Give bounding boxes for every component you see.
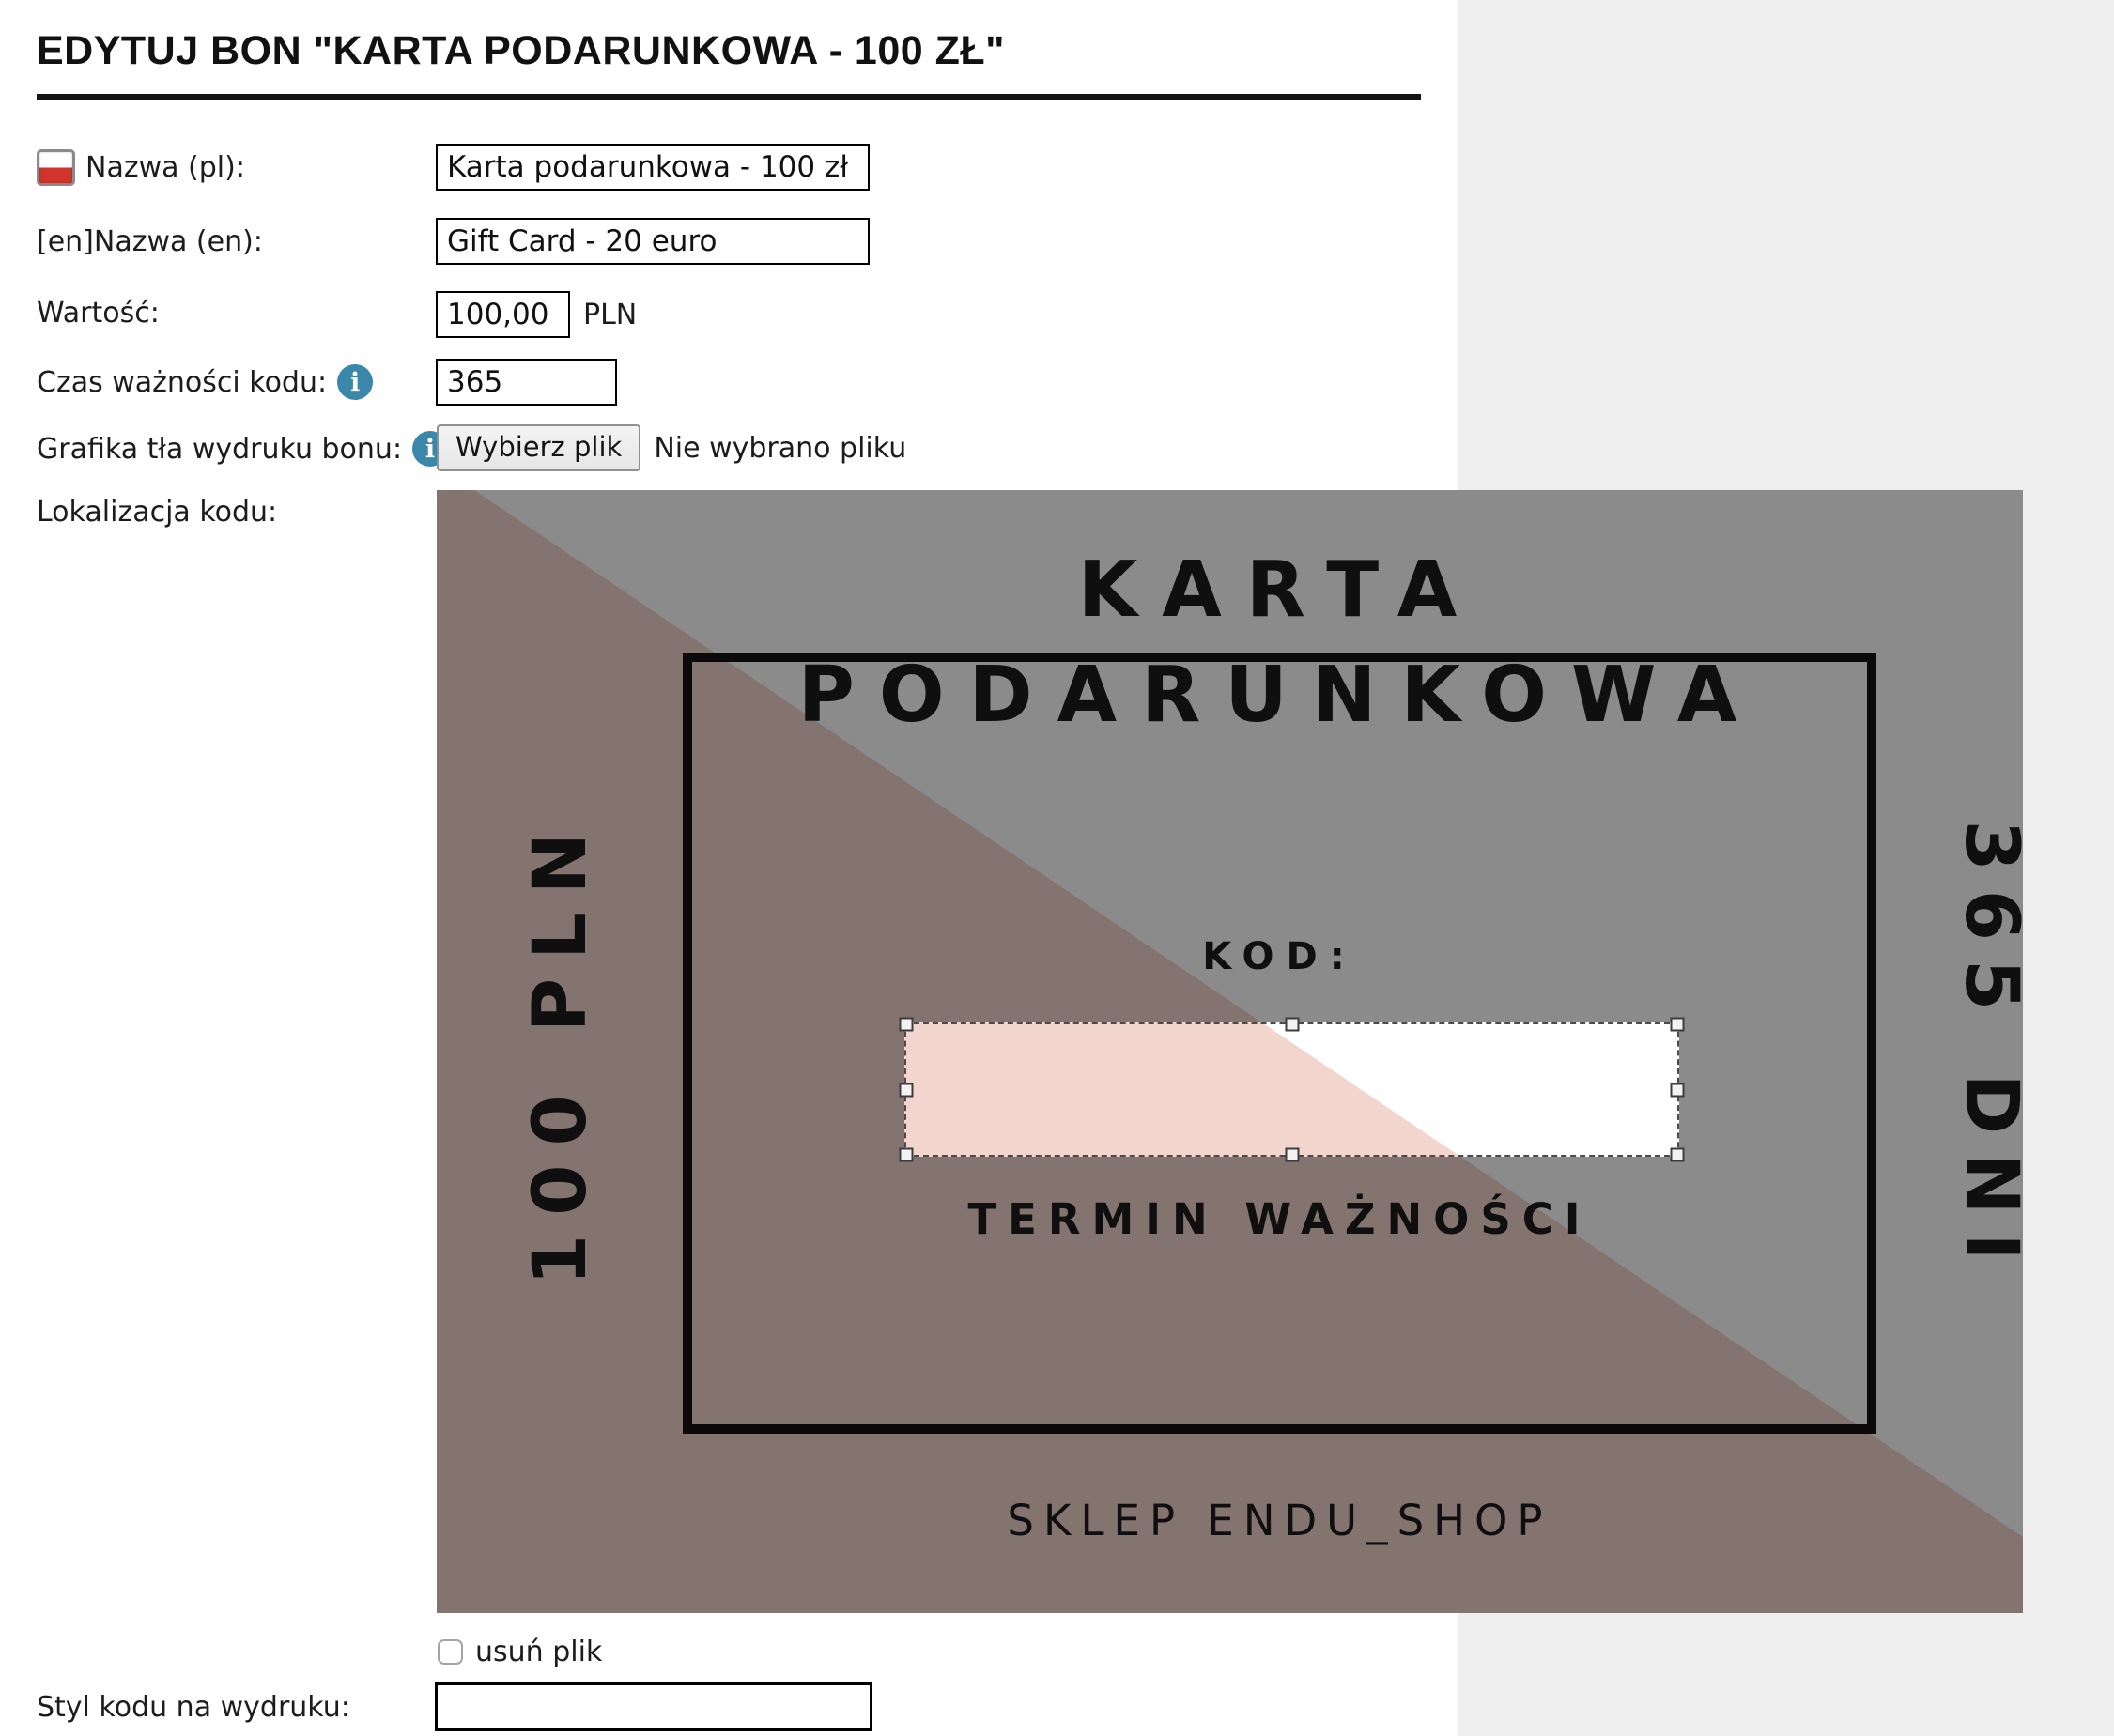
card-left-vertical-text: 100 PLN — [524, 814, 597, 1285]
choose-file-button[interactable]: Wybierz plik — [437, 424, 640, 471]
value-input[interactable] — [436, 291, 570, 338]
remove-file-checkbox[interactable] — [438, 1639, 463, 1665]
resize-handle-top-middle[interactable] — [1285, 1018, 1299, 1032]
card-right-vertical-text: 365 DNI — [1954, 820, 2023, 1279]
field-row-code-location: Lokalizacja kodu: — [37, 488, 277, 535]
background-label: Grafika tła wydruku bonu: — [37, 433, 402, 466]
field-row-name-pl: Nazwa (pl): — [37, 144, 245, 191]
resize-handle-middle-left[interactable] — [900, 1083, 914, 1097]
resize-handle-bottom-left[interactable] — [900, 1148, 914, 1162]
field-row-name-en: [en]Nazwa (en): — [37, 218, 263, 265]
resize-handle-top-left[interactable] — [900, 1018, 914, 1032]
card-validity-caption: TERMIN WAŻNOŚCI — [683, 1198, 1876, 1240]
info-glyph: i — [350, 368, 360, 397]
card-footer-caption: SKLEP ENDU_SHOP — [683, 1499, 1876, 1542]
validity-input[interactable] — [436, 359, 617, 406]
card-title-line2: PODARUNKOWA — [683, 657, 1876, 734]
card-title-line1: KARTA — [683, 552, 1876, 629]
code-location-selection[interactable] — [904, 1022, 1679, 1157]
resize-handle-middle-right[interactable] — [1671, 1083, 1685, 1097]
info-icon[interactable]: i — [337, 364, 373, 400]
code-style-label: Styl kodu na wydruku: — [37, 1691, 350, 1724]
field-row-code-style: Styl kodu na wydruku: — [37, 1682, 350, 1731]
field-row-validity: Czas ważności kodu: i — [37, 359, 373, 406]
value-unit: PLN — [583, 299, 637, 331]
name-pl-input[interactable] — [436, 144, 870, 191]
value-group: PLN — [436, 291, 637, 338]
value-label: Wartość: — [37, 297, 160, 330]
poland-flag-icon — [37, 149, 75, 186]
title-divider — [37, 94, 1421, 100]
remove-file-row: usuń plik — [438, 1636, 602, 1668]
remove-file-label: usuń plik — [475, 1636, 602, 1668]
file-input-group: Wybierz plik Nie wybrano pliku — [437, 427, 906, 469]
resize-handle-bottom-right[interactable] — [1671, 1148, 1685, 1162]
file-status-text: Nie wybrano pliku — [654, 432, 906, 465]
page-title: EDYTUJ BON "KARTA PODARUNKOWA - 100 ZŁ" — [37, 28, 1005, 74]
resize-handle-top-right[interactable] — [1671, 1018, 1685, 1032]
code-location-label: Lokalizacja kodu: — [37, 496, 277, 529]
field-row-background: Grafika tła wydruku bonu: i — [37, 428, 448, 469]
info-glyph: i — [425, 435, 435, 464]
name-pl-label: Nazwa (pl): — [85, 151, 245, 184]
gift-card-preview: KARTA PODARUNKOWA KOD: TERMIN WAŻNOŚCI S… — [437, 490, 2023, 1613]
code-style-input[interactable] — [435, 1682, 872, 1731]
validity-label: Czas ważności kodu: — [37, 366, 327, 399]
name-en-input[interactable] — [436, 218, 870, 265]
field-row-value: Wartość: — [37, 289, 160, 336]
card-code-caption: KOD: — [683, 938, 1876, 976]
resize-handle-bottom-middle[interactable] — [1285, 1148, 1299, 1162]
name-en-label: [en]Nazwa (en): — [37, 225, 263, 258]
